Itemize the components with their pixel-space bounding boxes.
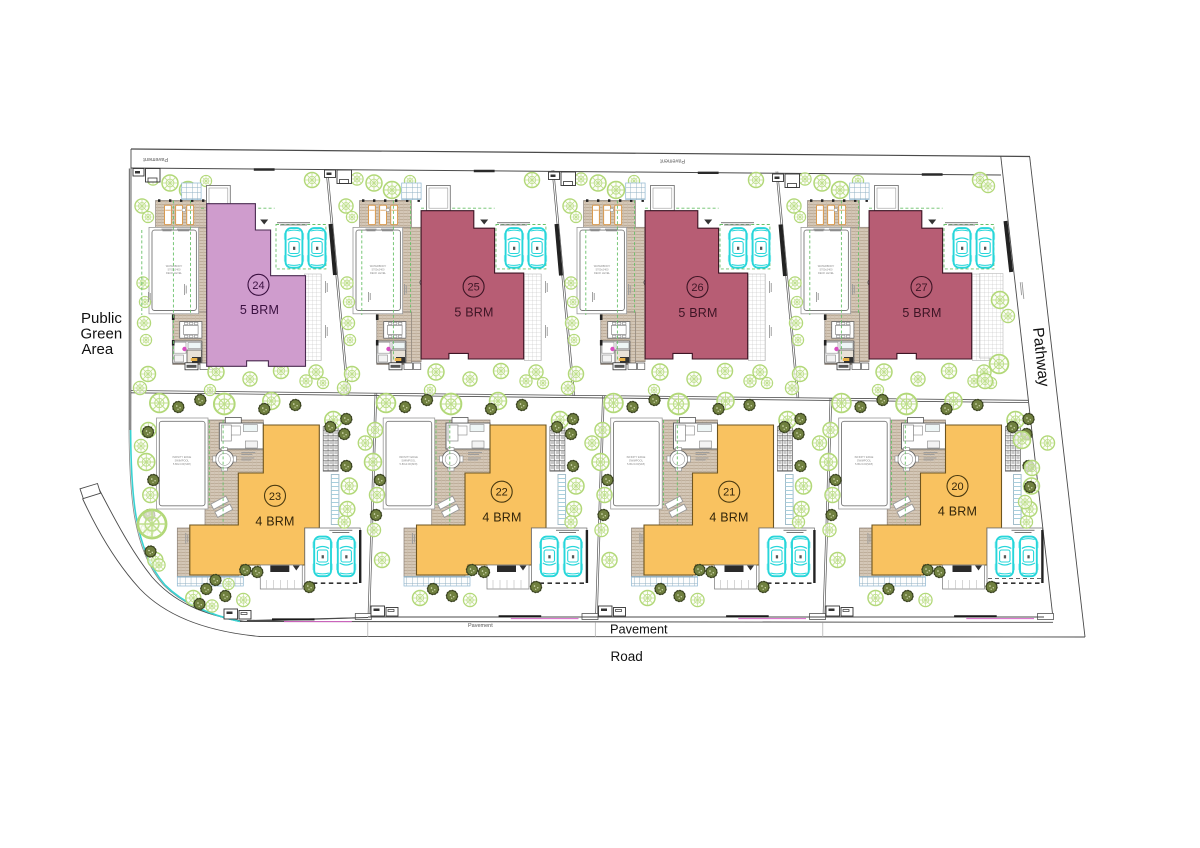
svg-text:Pavement: Pavement (610, 622, 668, 637)
svg-text:Green: Green (81, 326, 123, 343)
svg-text:Pavement: Pavement (660, 158, 685, 164)
svg-text:Public: Public (81, 310, 122, 327)
svg-text:23: 23 (269, 491, 281, 503)
svg-text:4 BRM: 4 BRM (709, 511, 748, 525)
svg-text:22: 22 (496, 487, 508, 499)
svg-text:21: 21 (723, 487, 735, 499)
svg-text:5 BRM: 5 BRM (678, 306, 717, 320)
svg-text:5 BRM: 5 BRM (240, 303, 279, 317)
svg-text:Road: Road (611, 649, 643, 664)
svg-text:4 BRM: 4 BRM (482, 511, 521, 525)
svg-text:27: 27 (915, 282, 927, 294)
svg-text:5 BRM: 5 BRM (454, 306, 493, 320)
svg-text:4 BRM: 4 BRM (255, 515, 294, 529)
svg-text:20: 20 (951, 481, 963, 493)
svg-text:Pavement: Pavement (468, 623, 493, 629)
svg-text:4 BRM: 4 BRM (938, 505, 977, 519)
svg-text:Area: Area (82, 341, 114, 358)
svg-text:25: 25 (467, 282, 479, 294)
svg-text:26: 26 (691, 282, 703, 294)
svg-text:5 BRM: 5 BRM (902, 306, 941, 320)
svg-text:Pavement: Pavement (143, 156, 168, 162)
svg-text:24: 24 (252, 280, 264, 292)
